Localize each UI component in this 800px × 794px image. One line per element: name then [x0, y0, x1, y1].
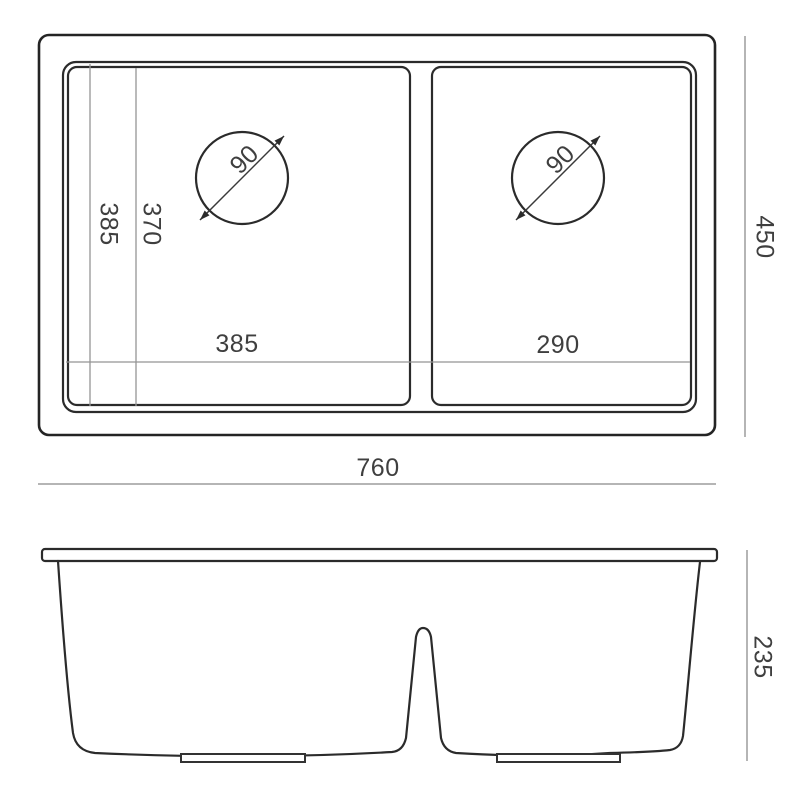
left-foot-pad: [181, 754, 305, 762]
right-bowl-width-label: 290: [536, 331, 579, 359]
top-view: 385 370 385 290 90 90: [39, 35, 715, 435]
sink-body-profile: [58, 561, 700, 756]
front-view: [42, 549, 717, 762]
left-bowl-width-label: 385: [215, 330, 258, 358]
overall-depth-label: 450: [750, 215, 778, 258]
overall-width-label: 760: [356, 454, 399, 482]
left-drain-diameter-label: 90: [224, 139, 264, 179]
right-drain: 90: [512, 132, 604, 224]
sink-technical-drawing-page: 385 370 385 290 90 90: [0, 0, 800, 794]
bowl-height-label: 235: [748, 635, 776, 678]
bowl-height-dimension: 235: [747, 550, 776, 761]
overall-depth-dimension: 450: [745, 36, 778, 437]
vertical-dim-label-370: 370: [137, 202, 165, 245]
overall-width-dimension: 760: [38, 454, 716, 484]
vertical-dim-label-385: 385: [94, 202, 122, 245]
sink-rim-profile: [42, 549, 717, 561]
left-drain: 90: [196, 132, 288, 224]
right-drain-diameter-label: 90: [540, 139, 580, 179]
sink-technical-drawing: 385 370 385 290 90 90: [0, 0, 800, 794]
right-foot-pad: [497, 754, 620, 762]
